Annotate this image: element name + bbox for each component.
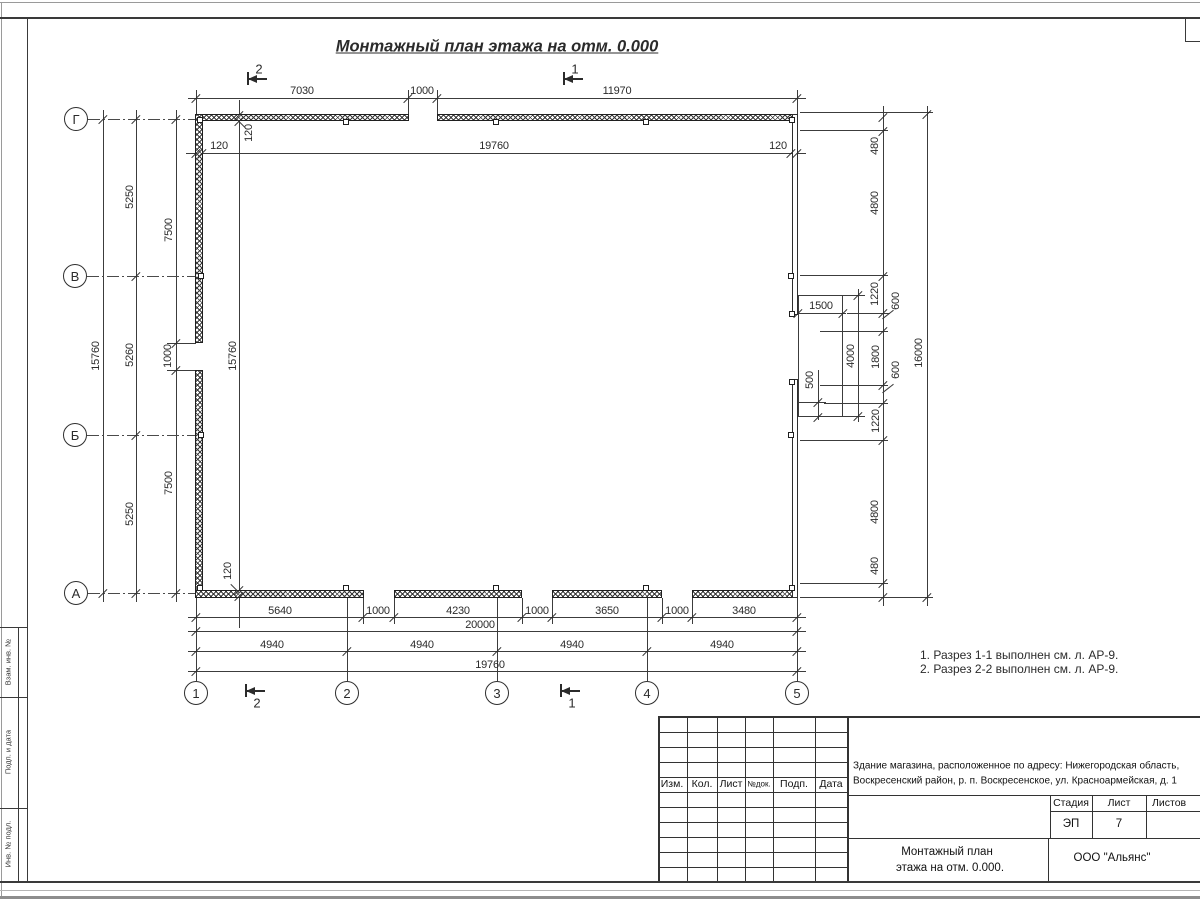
column-mark [343,119,349,125]
dim-label: 7500 [163,471,175,495]
drawing-line [239,100,240,628]
titleblock-header-podp: Подп. [780,778,808,790]
wall-segment [195,114,409,121]
dim-label: 600 [890,292,902,310]
axis-circle-row-А: А [64,581,88,605]
dim-label: 480 [869,557,881,575]
axis-line [87,276,195,277]
wall-segment [692,590,798,598]
frame-side-label: Подп. и дата [4,730,13,774]
drawing-line [188,98,806,99]
titleblock-header-data: Дата [819,778,842,790]
drawing-line [522,598,523,624]
drawing-line [176,110,177,602]
doc-title-line1: Монтажный план [901,846,993,858]
dim-label: 4800 [869,500,881,524]
drawing-line [800,440,888,441]
drawing-line [717,717,718,881]
note-line-2: 2. Разрез 2-2 выполнен см. л. АР-9. [920,662,1118,676]
drawing-line [858,289,859,422]
drawing-line [196,90,197,115]
section-marker-label: 1 [571,62,578,77]
note-line-1: 1. Разрез 1-1 выполнен см. л. АР-9. [920,648,1118,662]
column-mark [789,311,795,317]
axis-circle-row-В: В [63,264,87,288]
dim-label: 4940 [260,639,284,651]
dim-label: 3650 [595,605,619,617]
drawing-line [394,598,395,624]
drawing-line [662,598,663,624]
frame-side-label: Инв. № подл. [4,821,13,868]
dim-label: 1220 [870,409,882,433]
titleblock-header-kol: Кол. [692,778,713,790]
sheet-label: Лист [1108,797,1131,809]
drawing-line [647,598,648,681]
column-mark [789,379,795,385]
drawing-line [167,370,196,371]
drawing-line [1146,795,1147,838]
column-mark [493,585,499,591]
drawing-line [0,881,1200,883]
drawing-line [883,106,884,606]
dim-label: 1500 [809,300,833,312]
dim-label: 1000 [525,605,549,617]
dim-label: 600 [890,361,902,379]
axis-circle-row-Б: Б [63,423,87,447]
column-mark [788,273,794,279]
column-mark [197,585,203,591]
axis-circle-col-5: 5 [785,681,809,705]
drawing-line [843,295,865,296]
titleblock-header-list: Лист [720,778,743,790]
dim-label: 4000 [845,344,857,368]
dim-label: 120 [222,562,234,580]
dim-label: 1000 [366,605,390,617]
drawing-line [658,716,1200,718]
column-mark [493,119,499,125]
drawing-line [745,717,746,881]
dim-label: 4940 [560,639,584,651]
dim-label: 120 [210,140,228,152]
column-mark [789,585,795,591]
dim-label: 15760 [90,341,102,371]
drawing-line [1050,811,1200,812]
frame-side-label: Взам. инв. № [4,639,13,685]
project-address-line1: Здание магазина, расположенное по адресу… [853,761,1179,772]
sheets-label: Листов [1152,797,1186,809]
column-mark [789,117,795,123]
stage-value: ЭП [1063,818,1080,830]
drawing-line [186,153,806,154]
drawing-line [347,598,348,681]
column-mark [198,432,204,438]
drawing-line [0,697,27,698]
column-mark [197,117,203,123]
drawing-line [0,627,27,628]
dim-label: 120 [243,124,255,142]
dim-label: 4940 [710,639,734,651]
drawing-line [1050,795,1051,838]
wall-segment [195,370,203,598]
drawing-line [408,90,409,115]
section-marker-label: 1 [568,696,575,711]
wall-segment [552,590,662,598]
drawing-line [800,597,933,598]
company-name: ООО "Альянс" [1074,852,1151,864]
dim-label: 480 [869,137,881,155]
axis-circle-row-Г: Г [64,107,88,131]
drawing-line [658,716,660,881]
titleblock-header-dok: №док. [747,780,770,789]
drawing-line [687,717,688,881]
dim-label: 5250 [124,185,136,209]
drawing-line [847,795,1200,796]
section-marker-label: 2 [253,696,260,711]
dim-label: 5640 [268,605,292,617]
drawing-line [1,2,2,897]
project-address-line2: Воскресенский район, р. п. Воскресенское… [853,776,1177,787]
section-marker-arrow-icon [561,687,570,695]
dim-label: 7500 [163,218,175,242]
axis-circle-col-3: 3 [485,681,509,705]
column-mark [643,119,649,125]
wall-segment [437,114,798,121]
dim-label: 1000 [410,85,434,97]
wall-segment [195,590,364,598]
drawing-line [800,275,888,276]
dim-label: 20000 [465,619,495,631]
dim-label: 4940 [410,639,434,651]
drawing-line [363,598,364,624]
drawing-line [843,416,865,417]
drawing-line [847,838,1200,839]
column-mark [643,585,649,591]
drawing-line [27,17,28,881]
axis-circle-col-2: 2 [335,681,359,705]
dim-label: 1000 [162,344,174,368]
drawing-line [800,112,933,113]
drawing-line [552,598,553,624]
dim-label: 120 [769,140,787,152]
dim-label: 19760 [479,140,509,152]
dim-label: 7030 [290,85,314,97]
column-mark [343,585,349,591]
dim-label: 1000 [665,605,689,617]
titleblock-header-izm: Изм. [661,778,684,790]
drawing-line [1185,18,1186,42]
column-mark [788,432,794,438]
dim-label: 3480 [732,605,756,617]
drawing-line [773,717,774,881]
drawing-line [437,90,438,115]
drawing-line [692,598,693,624]
stage-label: Стадия [1053,797,1089,809]
sheet-value: 7 [1116,818,1122,830]
column-mark [198,273,204,279]
drawing-line [1092,795,1093,838]
drawing-line [847,716,849,881]
dim-label: 16000 [913,338,925,368]
drawing-line [1185,41,1200,42]
drawing-line [800,130,888,131]
axis-circle-col-1: 1 [184,681,208,705]
drawing-line [103,110,104,602]
dim-label: 5250 [124,502,136,526]
wall-segment [394,590,522,598]
drawing-line [1048,838,1049,881]
drawing-sheet: Монтажный план этажа на отм. 0.000 1. Ра… [0,0,1200,900]
drawing-line [136,110,137,602]
dim-label: 1220 [869,282,881,306]
drawing-line [0,2,1200,3]
dim-label: 11970 [603,85,632,97]
curtain-wall-segment [792,114,798,315]
axis-circle-col-4: 4 [635,681,659,705]
drawing-line [0,808,27,809]
drawing-line [815,717,816,881]
dim-label: 15760 [227,341,239,371]
dim-label: 4230 [446,605,470,617]
drawing-line [800,583,888,584]
drawing-title: Монтажный план этажа на отм. 0.000 [336,38,659,57]
dim-label: 4800 [869,191,881,215]
drawing-line [18,627,19,881]
drawing-line [927,106,928,606]
drawing-line [797,90,798,115]
doc-title-line2: этажа на отм. 0.000. [896,862,1004,874]
dim-label: 500 [804,371,816,389]
dim-label: 5260 [124,343,136,367]
axis-line [87,435,195,436]
section-marker-arrow-icon [246,687,255,695]
dim-label: 19760 [475,659,505,671]
section-marker-label: 2 [255,62,262,77]
drawing-line [0,890,1200,891]
dim-label: 1800 [870,345,882,369]
drawing-line [0,896,1200,899]
drawing-line [0,17,1200,19]
curtain-wall-segment [792,379,798,598]
